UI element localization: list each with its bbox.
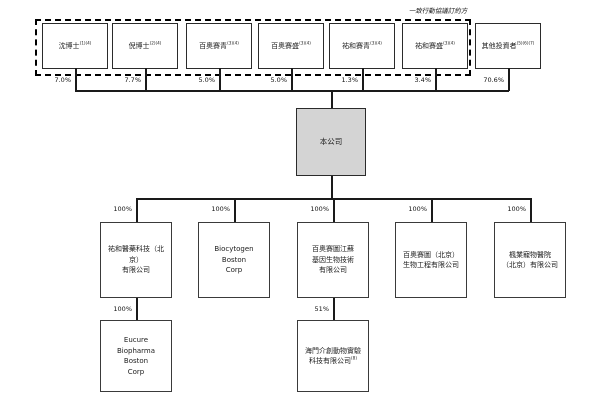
subsidiary-box-pet-hospital: 楓業寵物醫院 （北京）有限公司 [494,222,566,298]
company-label: 本公司 [320,136,343,147]
footnote-ref: (8) [351,356,357,361]
shareholder-label: 百奧賽盛 [271,42,299,50]
ownership-label: 7.0% [27,77,71,84]
connector-line [435,68,437,91]
ownership-label: 7.7% [97,77,141,84]
subsidiary-label: Biocytogen Boston Corp [214,244,253,276]
ownership-label: 3.4% [387,77,431,84]
footnote-ref: (2)(4) [150,40,162,45]
shareholder-label: 祐和賽青 [342,42,370,50]
connector-line [331,176,333,198]
ownership-label: 100% [88,206,132,213]
subsidiary-label: 祐和醫藥科技（北京） 有限公司 [103,244,169,276]
subsidiary-box-youhe-pharma: 祐和醫藥科技（北京） 有限公司 [100,222,172,298]
connector-line [219,68,221,91]
connector-line [75,90,509,92]
company-box: 本公司 [296,108,366,176]
ownership-label: 5.0% [171,77,215,84]
subsidiary-label: 百奧賽圖（北京） 生物工程有限公司 [403,250,459,271]
shareholder-box-other-investors: 其他投資者(5)(6)(7) [475,23,541,69]
connector-line [75,68,77,91]
shareholding-structure-diagram: 一致行動協議訂約方 沈博士(1)(4) 倪博士(2)(4) 百奧賽青(3)(4)… [0,0,600,400]
subsidiary-box-eucure-boston: Eucure Biopharma Boston Corp [100,320,172,392]
footnote-ref: (3)(4) [443,40,455,45]
footnote-ref: (3)(4) [299,40,311,45]
ownership-label: 100% [88,306,132,313]
acting-in-concert-label: 一致行動協議訂約方 [390,8,486,15]
ownership-label: 51% [285,306,329,313]
connector-line [530,198,532,222]
shareholder-box-baiao-saiqing: 百奧賽青(3)(4) [186,23,252,69]
ownership-label: 100% [383,206,427,213]
subsidiary-label: Eucure Biopharma Boston Corp [117,335,155,377]
footnote-ref: (1)(4) [80,40,92,45]
connector-line [333,298,335,320]
connector-line [331,90,333,108]
ownership-label: 70.6% [460,77,504,84]
connector-line [431,198,433,222]
subsidiary-label: 楓業寵物醫院 （北京）有限公司 [502,250,558,271]
ownership-label: 1.3% [314,77,358,84]
shareholder-label: 祐和賽盛 [415,42,443,50]
footnote-ref: (5)(6)(7) [517,40,535,45]
subsidiary-box-baiao-beijing: 百奧賽圖（北京） 生物工程有限公司 [395,222,467,298]
ownership-label: 100% [482,206,526,213]
ownership-label: 5.0% [243,77,287,84]
connector-line [362,68,364,91]
connector-line [136,298,138,320]
shareholder-label: 沈博士 [59,42,80,50]
footnote-ref: (3)(4) [370,40,382,45]
connector-line [136,198,138,222]
connector-line [234,198,236,222]
shareholder-label: 其他投資者 [482,42,517,50]
shareholder-label: 百奧賽青 [199,42,227,50]
shareholder-box-youhe-saiqing: 祐和賽青(3)(4) [329,23,395,69]
shareholder-box-dr-shen: 沈博士(1)(4) [42,23,108,69]
connector-line [145,68,147,91]
ownership-label: 100% [186,206,230,213]
subsidiary-box-haimen-lab: 海門介創動物實驗 科技有限公司(8) [297,320,369,392]
shareholder-label: 倪博士 [129,42,150,50]
connector-line [333,198,335,222]
subsidiary-box-baiao-jiangsu: 百奧賽圖江蘇 基因生物技術 有限公司 [297,222,369,298]
footnote-ref: (3)(4) [227,40,239,45]
connector-line [508,68,510,91]
subsidiary-label: 百奧賽圖江蘇 基因生物技術 有限公司 [312,244,354,276]
connector-line [291,68,293,91]
ownership-label: 100% [285,206,329,213]
shareholder-box-dr-ni: 倪博士(2)(4) [112,23,178,69]
shareholder-box-baiao-saisheng: 百奧賽盛(3)(4) [258,23,324,69]
subsidiary-box-biocytogen-boston: Biocytogen Boston Corp [198,222,270,298]
shareholder-box-youhe-saisheng: 祐和賽盛(3)(4) [402,23,468,69]
